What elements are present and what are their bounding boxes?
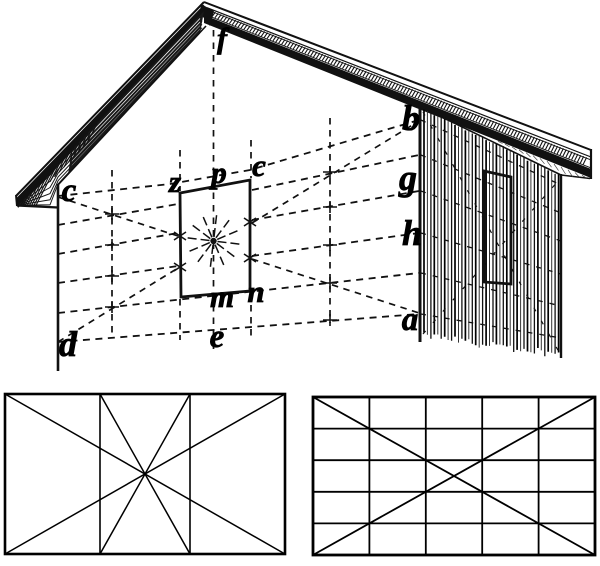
svg-text:z: z [168,164,181,199]
svg-text:n: n [247,274,264,309]
svg-text:h: h [402,213,422,253]
svg-text:m: m [210,279,234,314]
svg-text:p: p [208,155,227,190]
svg-text:e: e [210,319,225,355]
svg-text:c: c [62,173,77,209]
svg-text:b: b [402,98,420,138]
svg-text:a: a [402,302,419,338]
svg-text:c: c [252,148,266,183]
svg-text:g: g [398,158,417,198]
svg-text:d: d [59,324,78,364]
